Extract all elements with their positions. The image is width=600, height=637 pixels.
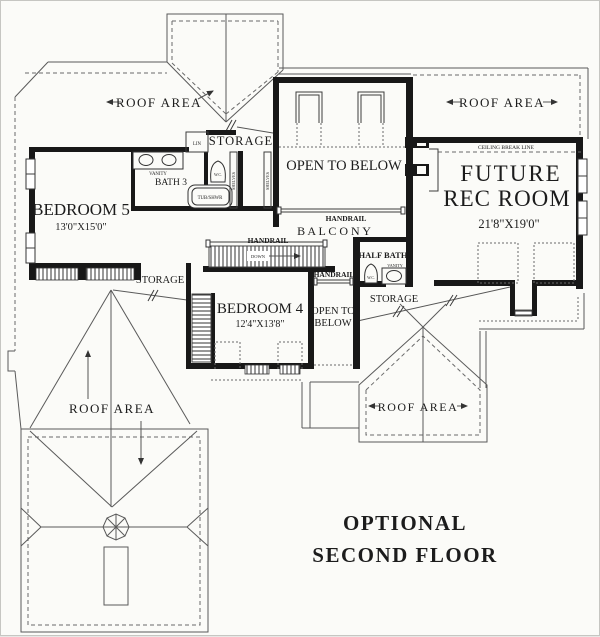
- stairs-lower: [192, 294, 211, 362]
- text-labels: ROOF AREA ROOF AREA ROOF AREA ROOF AREA …: [32, 95, 571, 567]
- ceiling-slope-line: [226, 120, 510, 322]
- plan-title-line1: OPTIONAL: [343, 511, 467, 535]
- roof-area-label-top-right: ROOF AREA: [459, 95, 545, 110]
- handrail-label-top: HANDRAIL: [326, 214, 367, 223]
- bedroom5-window-band: [36, 268, 78, 280]
- floor-plan-drawing: ROOF AREA ROOF AREA ROOF AREA ROOF AREA …: [1, 1, 600, 637]
- shelves-label-2: SHELVES: [265, 171, 270, 190]
- roof-area-label-bottom-right: ROOF AREA: [378, 400, 459, 414]
- plan-title-line2: SECOND FLOOR: [312, 543, 497, 567]
- roof-bottom-left: [8, 290, 208, 632]
- bedroom5-dims: 13'0"X15'0": [55, 222, 106, 233]
- bedroom4-dims: 12'4"X13'8": [236, 319, 285, 330]
- roof-area-label-top-left: ROOF AREA: [116, 95, 202, 110]
- storage-label-left: STORAGE: [136, 275, 184, 286]
- rec-room-name-line2: REC ROOM: [443, 186, 571, 211]
- bath3-wc-label: W.C.: [214, 172, 222, 177]
- balcony-label: B A L C O N Y: [297, 224, 371, 238]
- chimney-outline: [104, 547, 128, 605]
- shelves-label-1: SHELVES: [231, 171, 236, 190]
- lin-label: LIN: [193, 142, 202, 147]
- half-bath-wc-label: W.C.: [367, 276, 375, 280]
- open-to-below-upper-label: OPEN TO BELOW: [286, 158, 402, 174]
- down-label: DOWN: [251, 254, 266, 259]
- half-bath-vanity-label: VANITY: [387, 263, 403, 268]
- cupola-icon: [103, 514, 129, 540]
- floor-plan-sheet: ROOF AREA ROOF AREA ROOF AREA ROOF AREA …: [0, 0, 600, 636]
- roof-area-label-bottom-left: ROOF AREA: [69, 401, 155, 416]
- rec-room-name-line1: FUTURE: [460, 161, 561, 186]
- storage-label-right: STORAGE: [370, 294, 418, 305]
- handrail-label-lower: HANDRAIL: [314, 270, 355, 279]
- bath3-vanity-label: VANITY: [149, 172, 167, 177]
- bedroom4-name: BEDROOM 4: [217, 301, 304, 317]
- tub-shwr-label: TUB/SHWR: [198, 196, 224, 201]
- handrail-label-stairs: HANDRAIL: [248, 236, 289, 245]
- toilet-icon: [365, 264, 378, 283]
- open-to-lower-line1: OPEN TO: [311, 306, 355, 317]
- storage-label-top: STORAGE: [209, 134, 273, 148]
- rec-room-dims: 21'8"X19'0": [478, 217, 539, 231]
- half-bath-label: HALF BATH: [359, 250, 408, 260]
- ceiling-break-line-label: CEILING BREAK LINE: [478, 145, 535, 151]
- bedroom5-name: BEDROOM 5: [32, 200, 130, 219]
- open-to-lower-line2: BELOW: [314, 318, 351, 329]
- bath3-label: BATH 3: [155, 178, 187, 188]
